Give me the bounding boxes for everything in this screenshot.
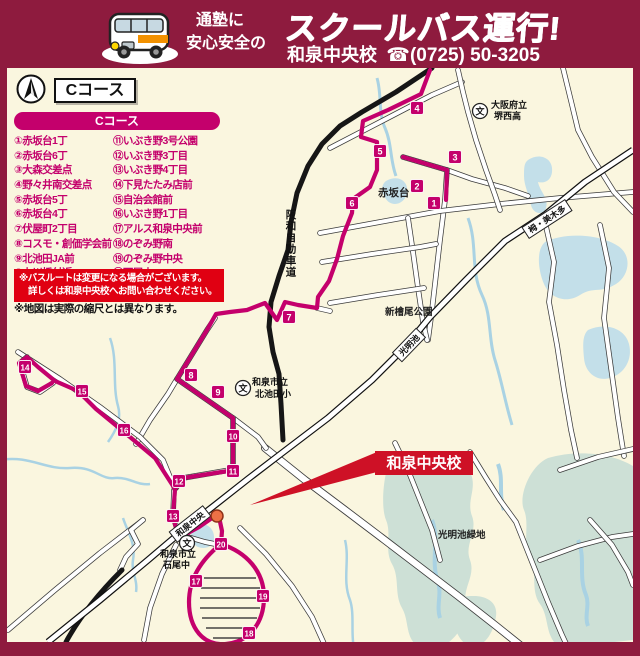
school-name-3-line2: 石尾中 bbox=[162, 559, 190, 570]
map-stop-marker-19: 19 bbox=[257, 590, 270, 603]
notice-line2: 詳しくは和泉中央校へお問い合わせください。 bbox=[19, 285, 221, 298]
map-stop-marker-5: 5 bbox=[374, 145, 387, 158]
stop-legend-item-6: ⑥赤坂台4丁 bbox=[14, 206, 113, 221]
map-stop-marker-3: 3 bbox=[449, 151, 462, 164]
svg-text:9: 9 bbox=[215, 387, 220, 397]
svg-text:12: 12 bbox=[175, 477, 184, 486]
notice-line1: ※バスルートは変更になる場合がございます。 bbox=[19, 273, 207, 284]
school-location-dot bbox=[211, 510, 223, 522]
stop-legend-item-18: ⑱のぞみ野南 bbox=[113, 236, 234, 251]
school-name-1-line2: 堺西高 bbox=[494, 110, 521, 121]
school-name-2-line1: 和泉市立 bbox=[251, 376, 288, 387]
flyer-page: { "header": { "tagline_line1": "通塾に", "t… bbox=[0, 0, 640, 656]
stop-list-column1: ①赤坂台1丁②赤坂台6丁③大森交差点④野々井南交差点⑤赤坂台5丁⑥赤坂台4丁⑦伏… bbox=[14, 133, 113, 280]
map-stop-marker-20: 20 bbox=[215, 538, 228, 551]
school-name-3-line1: 和泉市立 bbox=[159, 548, 196, 559]
tagline-line2: 安心安全の bbox=[186, 32, 296, 55]
school-bus-icon bbox=[98, 4, 182, 66]
school-name-2-line2: 北池田小 bbox=[255, 388, 291, 399]
stop-list-column2: ⑪いぶき野3号公園⑫いぶき野3丁目⑬いぶき野4丁目⑭下見たたみ店前⑮自治会館前⑯… bbox=[113, 133, 234, 280]
school-name-1-line1: 大阪府立 bbox=[491, 99, 527, 110]
map-stop-marker-1: 1 bbox=[428, 197, 441, 210]
map-stop-marker-6: 6 bbox=[346, 197, 359, 210]
svg-text:2: 2 bbox=[414, 181, 419, 191]
header-banner: 通塾に 安心安全の スクールバス運行! 和泉中央校 ☎(0725) 50-320… bbox=[0, 0, 640, 68]
area-label-3: 光明池緑地 bbox=[437, 529, 486, 541]
svg-text:13: 13 bbox=[169, 512, 178, 521]
map-stop-marker-18: 18 bbox=[243, 627, 256, 640]
destination-label: 和泉中央校 bbox=[386, 454, 462, 472]
map-stop-marker-14: 14 bbox=[19, 361, 32, 374]
school-icon-glyph-2: 文 bbox=[237, 382, 248, 393]
map-stop-marker-11: 11 bbox=[227, 465, 240, 478]
map-stop-marker-17: 17 bbox=[190, 575, 203, 588]
svg-text:19: 19 bbox=[259, 592, 268, 601]
legend-title-pill: Cコース bbox=[14, 112, 220, 130]
svg-text:14: 14 bbox=[21, 363, 30, 372]
svg-text:18: 18 bbox=[245, 629, 254, 638]
phone-icon: ☎ bbox=[386, 45, 410, 66]
phone-number: (0725) 50-3205 bbox=[410, 45, 540, 66]
map-stop-marker-15: 15 bbox=[76, 385, 89, 398]
map-stop-marker-12: 12 bbox=[173, 475, 186, 488]
svg-text:5: 5 bbox=[377, 146, 382, 156]
stop-legend-item-13: ⑬いぶき野4丁目 bbox=[113, 162, 234, 177]
tagline-line1: 通塾に bbox=[186, 9, 296, 32]
map-stop-marker-8: 8 bbox=[185, 369, 198, 382]
header-tagline: 通塾に 安心安全の bbox=[186, 9, 296, 55]
map-stop-marker-2: 2 bbox=[411, 180, 424, 193]
stop-legend-item-2: ②赤坂台6丁 bbox=[14, 148, 113, 163]
stop-legend-item-8: ⑧コスモ・創価学会前 bbox=[14, 236, 113, 251]
svg-text:20: 20 bbox=[217, 540, 226, 549]
school-icon-glyph-1: 文 bbox=[474, 105, 485, 116]
school-name: 和泉中央校 bbox=[287, 45, 377, 65]
stop-legend-item-17: ⑰アルス和泉中央前 bbox=[113, 221, 234, 236]
stop-legend-item-1: ①赤坂台1丁 bbox=[14, 133, 113, 148]
stop-legend-item-19: ⑲のぞみ野中央 bbox=[113, 251, 234, 266]
stop-legend-item-12: ⑫いぶき野3丁目 bbox=[113, 148, 234, 163]
map-stop-marker-4: 4 bbox=[411, 102, 424, 115]
svg-text:16: 16 bbox=[120, 426, 129, 435]
scale-note: ※地図は実際の縮尺とは異なります。 bbox=[14, 301, 183, 316]
school-icon-glyph-3: 文 bbox=[181, 537, 192, 548]
map-stop-marker-16: 16 bbox=[118, 424, 131, 437]
stop-legend-item-7: ⑦伏屋町2丁目 bbox=[14, 221, 113, 236]
map-stop-marker-13: 13 bbox=[167, 510, 180, 523]
svg-text:8: 8 bbox=[188, 370, 193, 380]
svg-text:1: 1 bbox=[431, 198, 436, 208]
map-stop-marker-10: 10 bbox=[227, 430, 240, 443]
map-stop-marker-7: 7 bbox=[283, 311, 296, 324]
area-label-2: 新檜尾公園 bbox=[385, 306, 433, 318]
stop-legend-item-3: ③大森交差点 bbox=[14, 162, 113, 177]
stop-legend-item-4: ④野々井南交差点 bbox=[14, 177, 113, 192]
expressway-label: 阪和自動車道 bbox=[285, 208, 297, 279]
map-stop-marker-9: 9 bbox=[212, 386, 225, 399]
notice-box: ※バスルートは変更になる場合がございます。 詳しくは和泉中央校へお問い合わせくだ… bbox=[14, 269, 224, 302]
svg-text:6: 6 bbox=[349, 198, 354, 208]
svg-text:10: 10 bbox=[229, 432, 238, 441]
stop-legend-item-15: ⑮自治会館前 bbox=[113, 192, 234, 207]
stop-legend-item-14: ⑭下見たたみ店前 bbox=[113, 177, 234, 192]
svg-text:7: 7 bbox=[286, 312, 291, 322]
area-label-1: 赤坂台 bbox=[378, 186, 410, 199]
stop-legend-item-16: ⑯いぶき野1丁目 bbox=[113, 206, 234, 221]
svg-text:15: 15 bbox=[78, 387, 87, 396]
stop-legend-item-9: ⑨北池田JA前 bbox=[14, 251, 113, 266]
compass-north-icon bbox=[16, 74, 46, 104]
stop-legend-item-5: ⑤赤坂台5丁 bbox=[14, 192, 113, 207]
course-badge: Cコース bbox=[54, 78, 136, 103]
stop-legend-item-11: ⑪いぶき野3号公園 bbox=[113, 133, 234, 148]
svg-text:4: 4 bbox=[414, 103, 419, 113]
svg-text:11: 11 bbox=[229, 467, 238, 476]
svg-text:17: 17 bbox=[192, 577, 201, 586]
svg-text:3: 3 bbox=[452, 152, 457, 162]
phone-line: 和泉中央校 ☎(0725) 50-3205 bbox=[287, 41, 540, 67]
